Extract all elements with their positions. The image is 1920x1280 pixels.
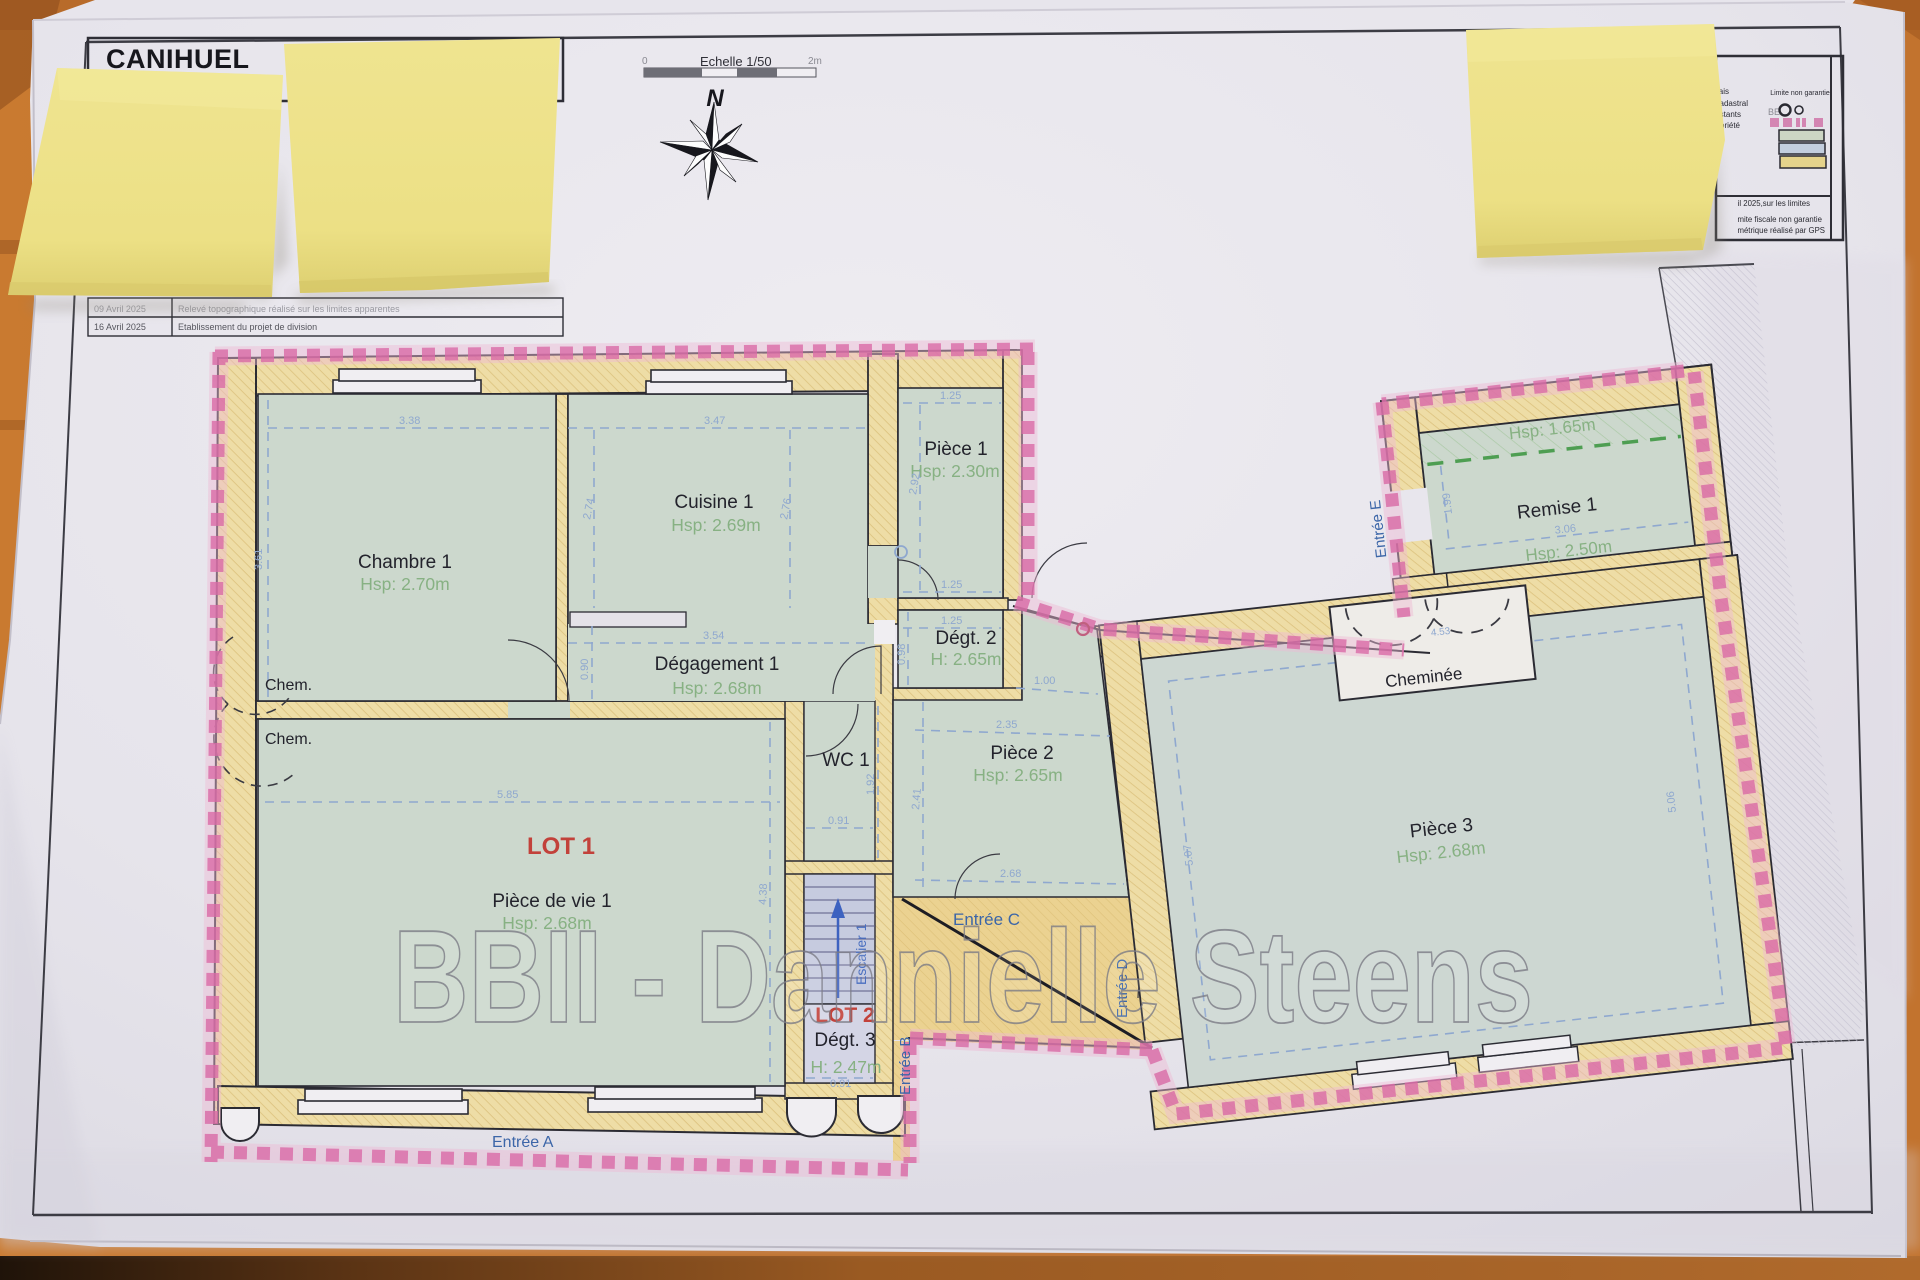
svg-text:Chem.: Chem. xyxy=(265,731,312,748)
svg-text:Pièce 1: Pièce 1 xyxy=(924,439,987,460)
svg-text:1.25: 1.25 xyxy=(941,579,962,591)
svg-text:métrique réalisé par GPS: métrique réalisé par GPS xyxy=(1737,226,1825,235)
svg-text:WC 1: WC 1 xyxy=(822,750,870,771)
svg-text:BBII - Dannielle Steens: BBII - Dannielle Steens xyxy=(393,903,1533,1050)
svg-text:1.92: 1.92 xyxy=(865,774,877,795)
svg-text:Limite non garantie: Limite non garantie xyxy=(1770,90,1830,97)
svg-text:3.06: 3.06 xyxy=(1554,523,1577,537)
svg-text:2m: 2m xyxy=(808,56,822,67)
svg-text:CANIHUEL: CANIHUEL xyxy=(106,44,250,74)
svg-text:Entrée A: Entrée A xyxy=(492,1134,554,1151)
svg-text:0.91: 0.91 xyxy=(830,1078,851,1090)
svg-text:3.54: 3.54 xyxy=(703,630,724,642)
svg-text:BE: BE xyxy=(1768,107,1780,117)
svg-text:N: N xyxy=(706,85,724,112)
svg-text:3.47: 3.47 xyxy=(704,415,725,427)
svg-text:H: 2.65m: H: 2.65m xyxy=(931,649,1002,669)
svg-text:1.25: 1.25 xyxy=(940,390,961,402)
svg-text:1.00: 1.00 xyxy=(1034,675,1055,687)
svg-text:Chem.: Chem. xyxy=(265,677,312,694)
svg-text:5.85: 5.85 xyxy=(497,789,518,801)
svg-text:2.35: 2.35 xyxy=(996,719,1017,731)
svg-text:4.38: 4.38 xyxy=(757,883,770,905)
svg-text:3.61: 3.61 xyxy=(253,549,265,570)
svg-text:0.91: 0.91 xyxy=(828,815,849,827)
svg-text:2.41: 2.41 xyxy=(910,788,924,810)
svg-text:Dégt. 2: Dégt. 2 xyxy=(935,628,996,649)
svg-text:3.38: 3.38 xyxy=(399,415,420,427)
svg-text:Hsp: 2.30m: Hsp: 2.30m xyxy=(910,461,999,481)
svg-text:Hsp: 2.70m: Hsp: 2.70m xyxy=(360,574,449,594)
svg-text:4.53: 4.53 xyxy=(1430,626,1451,639)
svg-text:0.90: 0.90 xyxy=(579,659,591,680)
svg-text:1.99: 1.99 xyxy=(1441,492,1455,515)
svg-text:Cuisine 1: Cuisine 1 xyxy=(674,492,753,513)
svg-text:5.06: 5.06 xyxy=(1665,791,1679,814)
svg-text:Echelle 1/50: Echelle 1/50 xyxy=(700,54,772,69)
svg-text:1.25: 1.25 xyxy=(941,615,962,627)
svg-text:Hsp: 2.68m: Hsp: 2.68m xyxy=(672,678,761,698)
svg-text:mite fiscale non garantie: mite fiscale non garantie xyxy=(1737,215,1822,224)
svg-text:2.68: 2.68 xyxy=(1000,868,1021,880)
svg-text:5.07: 5.07 xyxy=(1182,844,1196,867)
svg-text:Hsp: 2.65m: Hsp: 2.65m xyxy=(973,765,1062,785)
svg-text:Pièce 2: Pièce 2 xyxy=(990,743,1053,764)
svg-text:0: 0 xyxy=(642,56,648,67)
svg-text:16 Avril 2025: 16 Avril 2025 xyxy=(94,322,146,332)
svg-text:Chambre 1: Chambre 1 xyxy=(358,552,452,573)
svg-text:Dégagement 1: Dégagement 1 xyxy=(655,654,780,675)
svg-text:H: 2.47m: H: 2.47m xyxy=(811,1057,882,1077)
svg-text:0.98: 0.98 xyxy=(896,644,908,665)
svg-text:il 2025,sur les limites: il 2025,sur les limites xyxy=(1738,199,1810,208)
svg-text:Hsp: 2.69m: Hsp: 2.69m xyxy=(671,515,760,535)
svg-text:LOT 1: LOT 1 xyxy=(527,833,595,860)
svg-text:Etablissement du projet de div: Etablissement du projet de division xyxy=(178,322,317,332)
